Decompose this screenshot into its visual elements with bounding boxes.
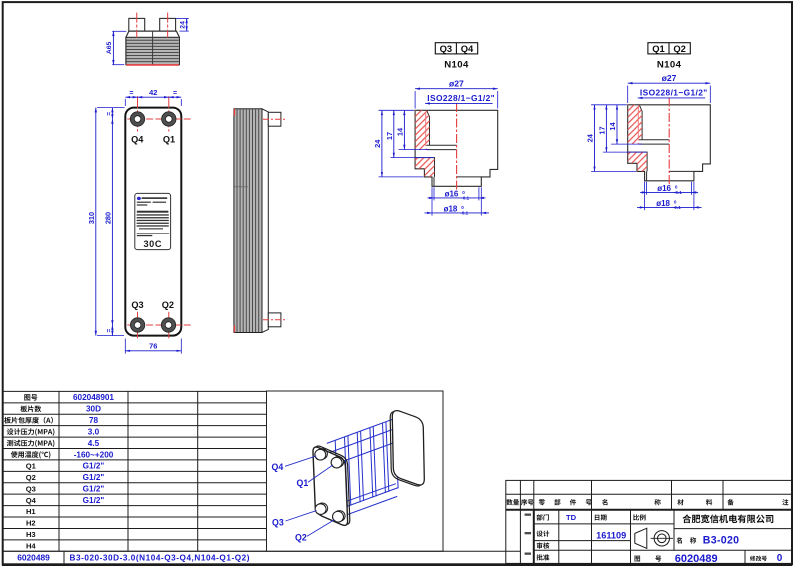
svg-text:=: = (106, 328, 113, 332)
svg-text:G1/2": G1/2" (83, 462, 105, 471)
svg-text:N104: N104 (444, 59, 469, 70)
svg-text:B3-020-30D-3.0(N104-Q3-Q4,N104: B3-020-30D-3.0(N104-Q3-Q4,N104-Q1-Q2) (70, 554, 251, 563)
svg-text:G1/2": G1/2" (83, 473, 105, 482)
svg-text:Q4: Q4 (461, 43, 474, 54)
svg-text:B3-020: B3-020 (703, 535, 740, 547)
svg-text:17: 17 (385, 132, 394, 140)
svg-text:Q1: Q1 (163, 134, 175, 144)
svg-text:Q2: Q2 (673, 43, 686, 54)
svg-text:24: 24 (180, 21, 187, 29)
svg-text:3.0: 3.0 (88, 427, 100, 436)
svg-text:Q1: Q1 (26, 462, 37, 471)
svg-text:ø16: ø16 (657, 184, 671, 193)
svg-text:Q3: Q3 (440, 43, 453, 54)
svg-text:G1/2": G1/2" (83, 485, 105, 494)
svg-text:H4: H4 (26, 541, 36, 550)
svg-text:ISO228/1−G1/2": ISO228/1−G1/2" (640, 87, 708, 97)
svg-text:30C: 30C (143, 239, 162, 249)
svg-text:=: = (129, 90, 133, 97)
svg-text:-0.1: -0.1 (673, 205, 681, 210)
svg-text:280: 280 (103, 212, 112, 224)
svg-text:0: 0 (462, 190, 465, 195)
svg-text:76: 76 (149, 341, 157, 350)
svg-text:ø27: ø27 (449, 78, 464, 88)
svg-text:14: 14 (395, 127, 404, 136)
svg-text:ISO228/1−G1/2": ISO228/1−G1/2" (427, 93, 495, 103)
svg-text:H3: H3 (26, 530, 36, 539)
svg-text:17: 17 (597, 126, 606, 134)
svg-text:-0.1: -0.1 (674, 190, 682, 195)
svg-text:14: 14 (608, 122, 617, 131)
svg-text:0: 0 (461, 205, 464, 210)
svg-text:78: 78 (89, 416, 99, 425)
svg-text:0: 0 (675, 184, 678, 189)
svg-text:=: = (106, 112, 113, 116)
svg-text:Q4: Q4 (26, 496, 37, 505)
svg-text:-0.1: -0.1 (461, 196, 469, 201)
svg-text:Q2: Q2 (26, 473, 36, 482)
svg-text:H1: H1 (26, 507, 36, 516)
svg-text:Q1: Q1 (297, 478, 309, 488)
svg-text:602048901: 602048901 (73, 393, 114, 402)
svg-text:24: 24 (586, 133, 595, 142)
svg-text:Q3: Q3 (131, 300, 143, 310)
svg-text:4.5: 4.5 (88, 439, 100, 448)
svg-text:30D: 30D (86, 405, 101, 414)
svg-text:6020489: 6020489 (675, 553, 718, 565)
svg-text:TD: TD (566, 513, 577, 522)
svg-text:G1/2": G1/2" (83, 496, 105, 505)
svg-text:A65: A65 (106, 41, 113, 54)
svg-text:Q4: Q4 (272, 462, 284, 472)
svg-text:6020489: 6020489 (17, 552, 50, 562)
svg-text:310: 310 (87, 212, 96, 224)
svg-text:-0.1: -0.1 (460, 211, 468, 216)
svg-text:H2: H2 (26, 519, 36, 528)
svg-text:ø27: ø27 (662, 73, 677, 83)
svg-text:Q3: Q3 (272, 518, 284, 528)
svg-text:ø18: ø18 (444, 204, 458, 213)
svg-text:0: 0 (674, 199, 677, 204)
svg-text:=: = (173, 90, 177, 97)
svg-text:Q2: Q2 (162, 300, 174, 310)
svg-text:ø18: ø18 (656, 199, 670, 208)
svg-text:161109: 161109 (596, 530, 626, 540)
svg-text:Q2: Q2 (295, 533, 307, 543)
svg-text:42: 42 (149, 88, 157, 97)
svg-text:N104: N104 (657, 59, 682, 70)
svg-text:0: 0 (777, 553, 783, 564)
svg-text:24: 24 (373, 139, 382, 148)
svg-text:ø16: ø16 (445, 189, 459, 198)
svg-text:-160~+200: -160~+200 (74, 450, 114, 459)
svg-text:Q1: Q1 (652, 43, 665, 54)
svg-text:Q4: Q4 (131, 134, 144, 144)
svg-text:Q3: Q3 (26, 484, 36, 493)
